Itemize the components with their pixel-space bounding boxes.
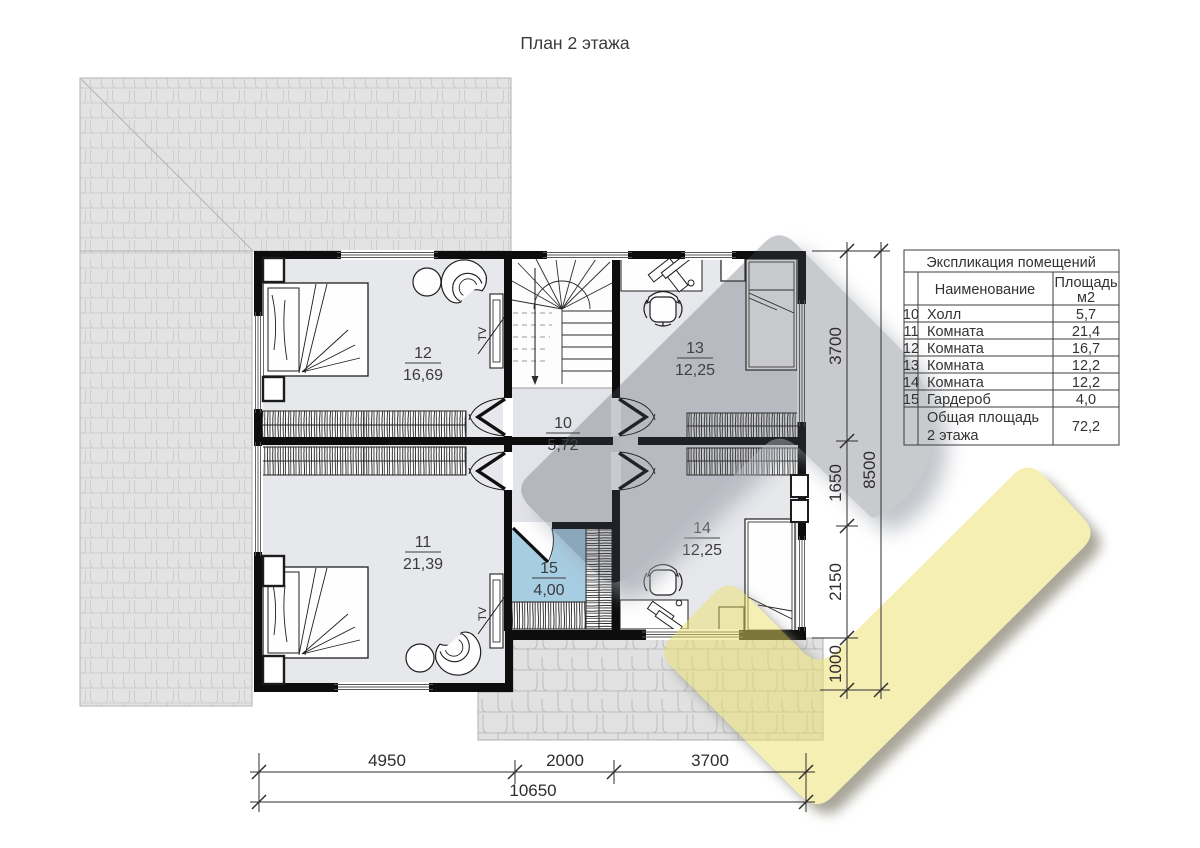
- svg-text:Площадь: Площадь: [1054, 275, 1117, 291]
- svg-text:Холл: Холл: [927, 307, 961, 323]
- svg-text:2150: 2150: [826, 563, 845, 601]
- svg-text:10: 10: [554, 415, 572, 432]
- svg-text:Общая площадь: Общая площадь: [927, 410, 1039, 426]
- svg-text:21,39: 21,39: [403, 556, 443, 573]
- svg-text:15: 15: [903, 392, 919, 408]
- svg-text:10: 10: [903, 307, 919, 323]
- svg-text:10650: 10650: [509, 781, 556, 800]
- svg-text:5,7: 5,7: [1076, 307, 1096, 323]
- svg-text:16,7: 16,7: [1072, 341, 1100, 357]
- svg-text:Комната: Комната: [927, 375, 985, 391]
- svg-text:Наименование: Наименование: [935, 282, 1036, 298]
- svg-text:1650: 1650: [826, 464, 845, 502]
- svg-text:12,2: 12,2: [1072, 375, 1100, 391]
- svg-text:м2: м2: [1077, 290, 1095, 306]
- svg-text:15: 15: [540, 560, 558, 577]
- svg-text:2000: 2000: [546, 751, 584, 770]
- svg-text:12: 12: [414, 345, 432, 362]
- svg-text:11: 11: [415, 534, 432, 551]
- svg-text:3700: 3700: [826, 327, 845, 365]
- svg-text:Комната: Комната: [927, 341, 985, 357]
- svg-text:2 этажа: 2 этажа: [927, 428, 979, 444]
- svg-text:12: 12: [903, 341, 919, 357]
- svg-text:TV: TV: [477, 326, 489, 341]
- svg-text:План 2 этажа: План 2 этажа: [520, 33, 629, 53]
- svg-text:11: 11: [903, 324, 918, 340]
- svg-text:21,4: 21,4: [1072, 324, 1100, 340]
- svg-text:72,2: 72,2: [1072, 419, 1100, 435]
- svg-text:12,2: 12,2: [1072, 358, 1100, 374]
- svg-text:4950: 4950: [368, 751, 406, 770]
- svg-text:Комната: Комната: [927, 358, 985, 374]
- svg-text:3700: 3700: [691, 751, 729, 770]
- svg-text:Экспликация помещений: Экспликация помещений: [926, 255, 1096, 271]
- svg-text:16,69: 16,69: [403, 367, 443, 384]
- svg-text:Гардероб: Гардероб: [927, 392, 991, 408]
- svg-text:8500: 8500: [860, 451, 879, 489]
- svg-text:14: 14: [903, 375, 919, 391]
- svg-text:TV: TV: [477, 606, 489, 621]
- svg-text:1000: 1000: [826, 645, 845, 683]
- svg-text:4,0: 4,0: [1076, 392, 1096, 408]
- svg-text:13: 13: [903, 358, 919, 374]
- svg-text:Комната: Комната: [927, 324, 985, 340]
- svg-text:4,00: 4,00: [533, 582, 564, 599]
